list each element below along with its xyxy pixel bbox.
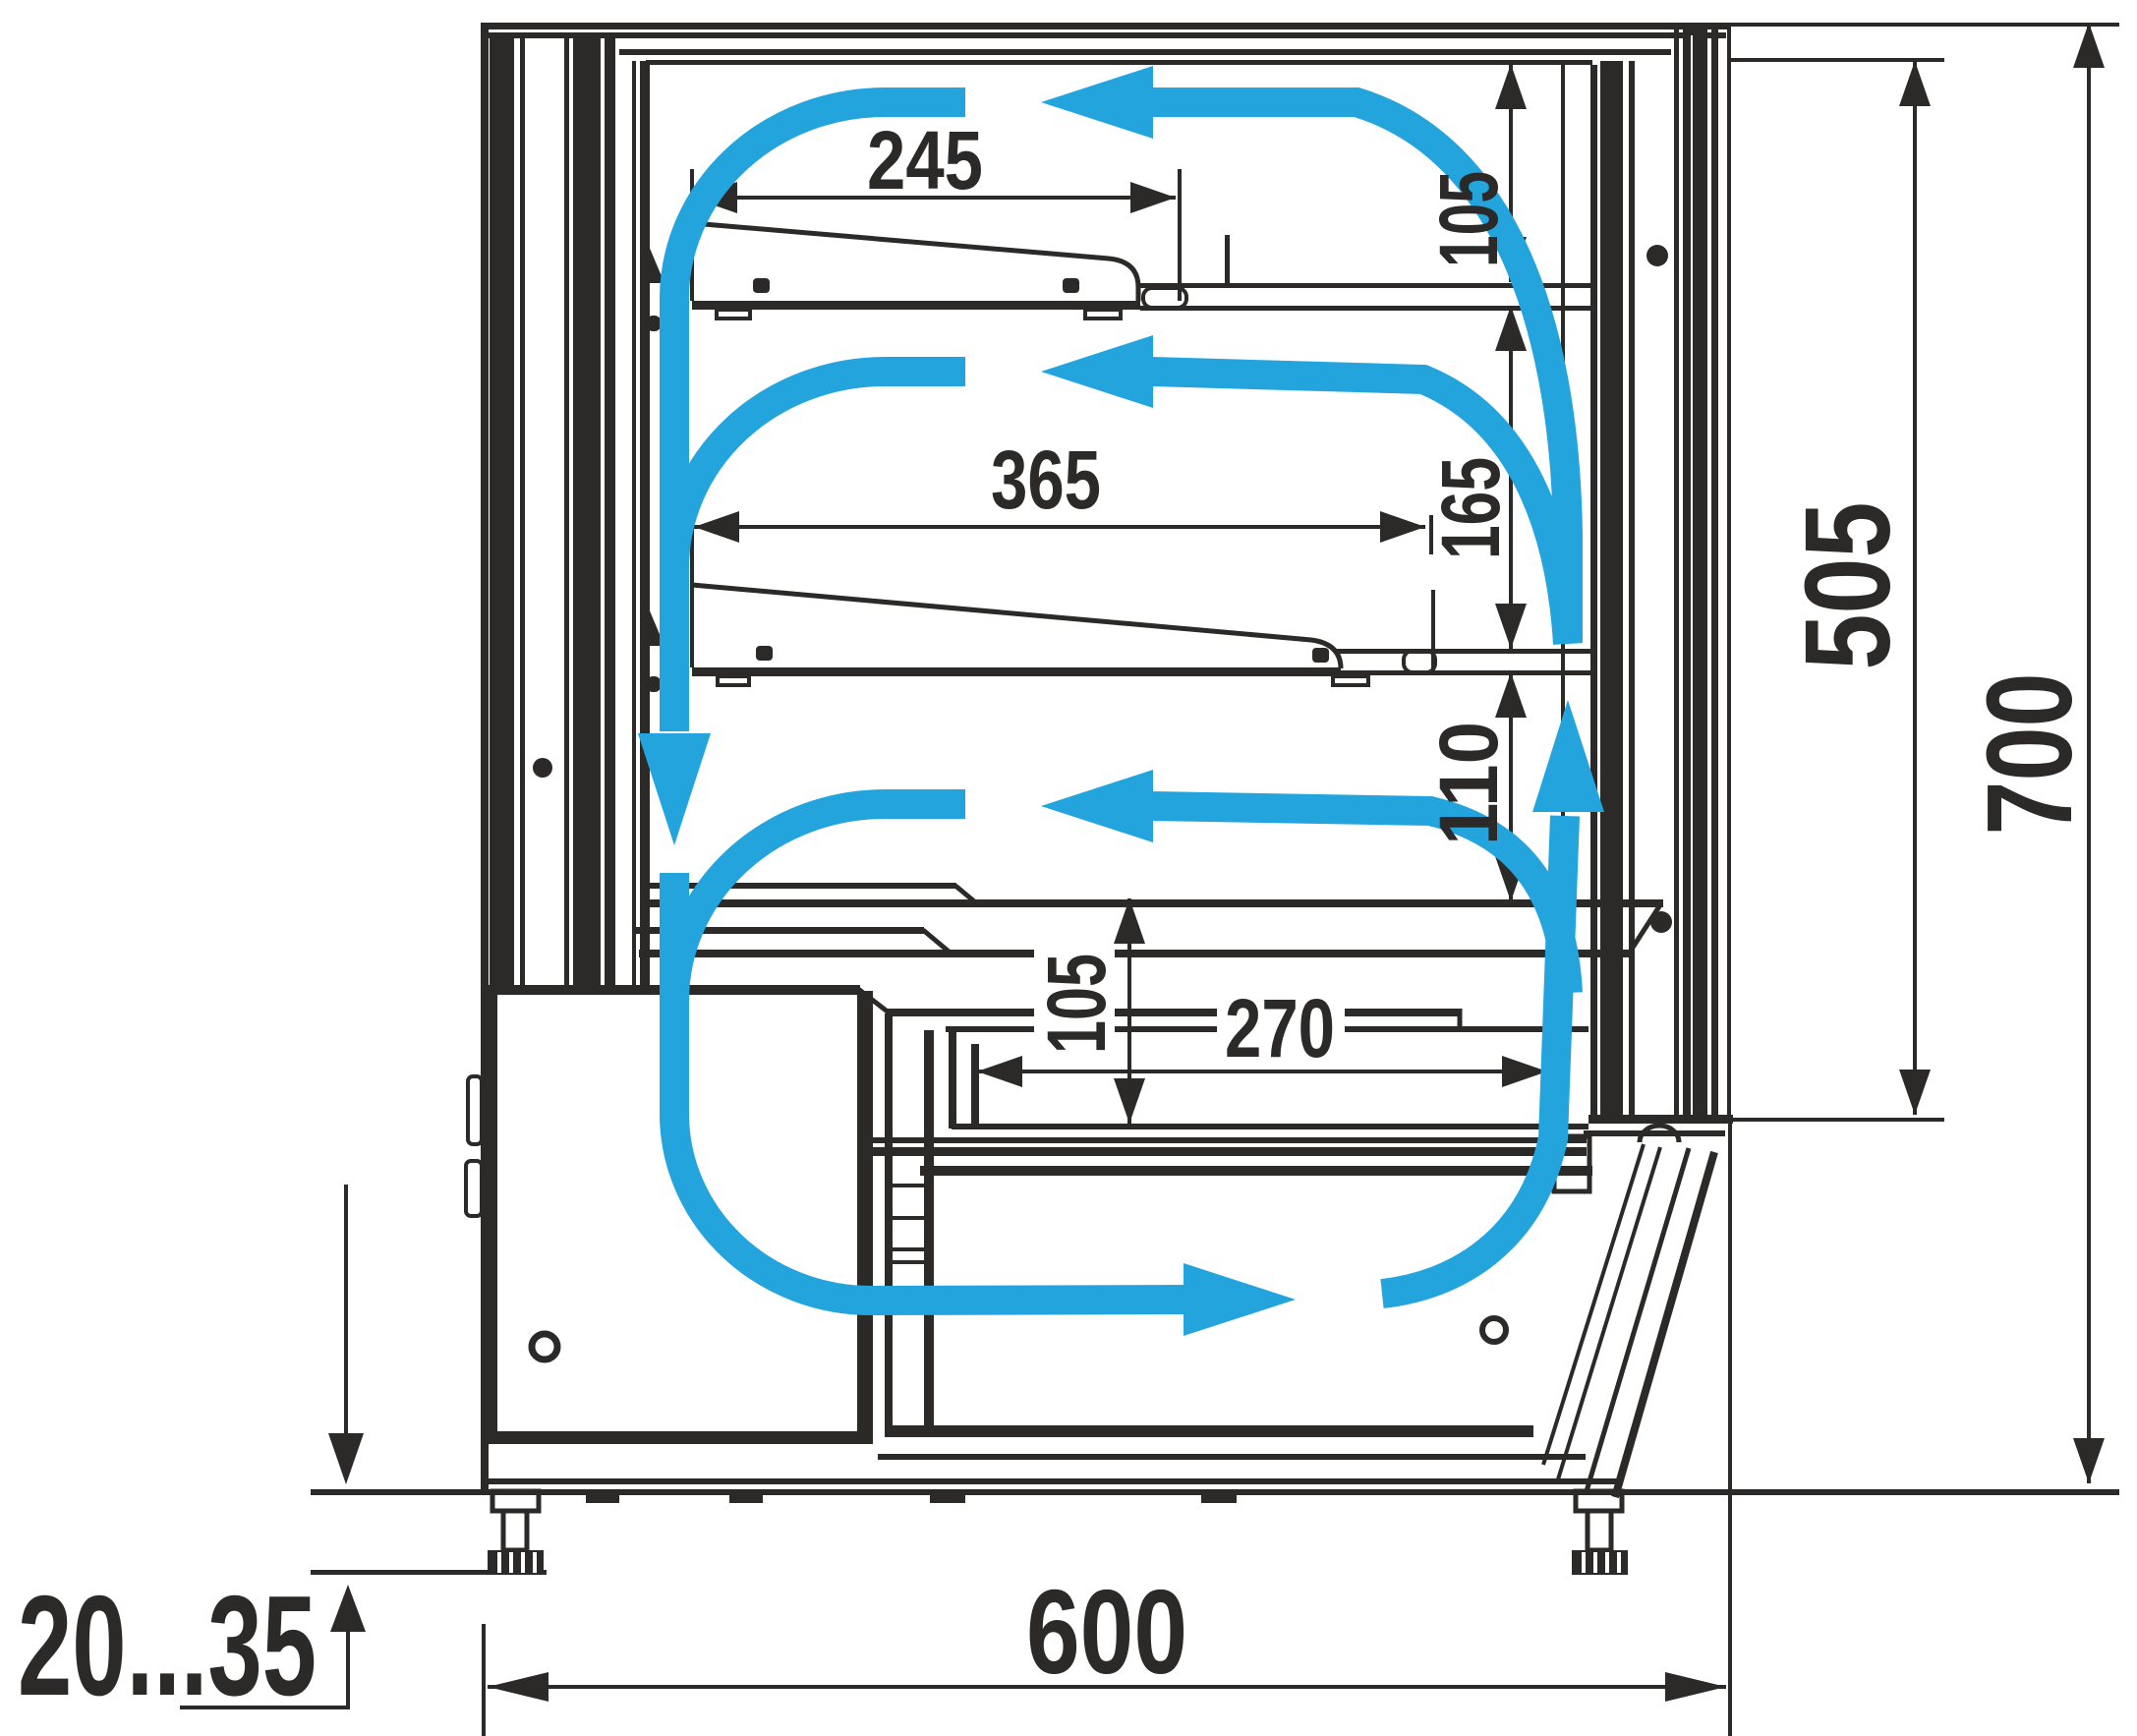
svg-text:20...35: 20...35 (18, 1566, 317, 1725)
svg-text:505: 505 (1781, 502, 1916, 670)
svg-text:165: 165 (1424, 457, 1517, 559)
svg-text:700: 700 (1963, 673, 2098, 836)
svg-text:600: 600 (1026, 1565, 1187, 1699)
svg-text:365: 365 (991, 434, 1101, 526)
svg-text:110: 110 (1422, 722, 1515, 845)
svg-text:105: 105 (1422, 171, 1515, 267)
svg-text:245: 245 (867, 114, 983, 206)
svg-text:270: 270 (1225, 982, 1335, 1074)
svg-text:105: 105 (1030, 954, 1123, 1054)
